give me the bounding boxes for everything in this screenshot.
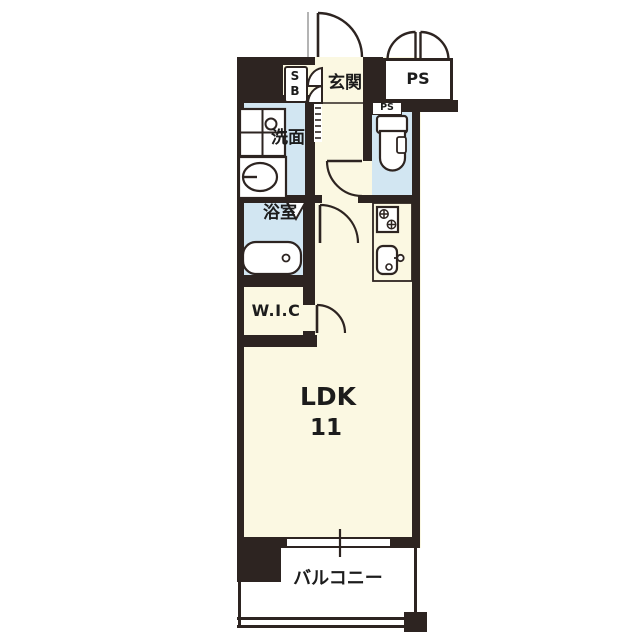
wall-wic-bottom xyxy=(237,335,317,347)
balcony-left-line xyxy=(238,581,241,628)
wall-left xyxy=(237,57,244,546)
wall-right xyxy=(412,102,420,546)
washroom-label: 洗面 xyxy=(260,129,316,148)
wall-bath-wic-divider xyxy=(237,275,315,287)
bathroom-label: 浴室 xyxy=(252,204,308,223)
ldk-label: LDK xyxy=(288,383,368,411)
wall-washroom-bath-divider xyxy=(237,195,315,203)
ps-door-swing-left xyxy=(388,32,416,60)
wall-hall-bottom-right xyxy=(358,195,420,203)
toilet-floor xyxy=(372,112,412,202)
balcony-rail-inner xyxy=(237,625,410,628)
balcony-rail-outer xyxy=(237,617,410,620)
washroom-floor xyxy=(244,103,307,195)
balcony-corner-post xyxy=(404,612,427,632)
wic-label: W.I.C xyxy=(246,302,306,320)
wall-ldk-bottom-right xyxy=(390,537,420,548)
wall-hall-bottom-left xyxy=(305,195,322,203)
wall-hall-left xyxy=(305,95,315,203)
ps-door-swing-right xyxy=(421,32,449,60)
balcony-label: バルコニー xyxy=(258,569,418,589)
shoe-box-label: SB xyxy=(288,69,302,99)
pipe-space-label: PS xyxy=(383,70,453,88)
ldk-size-label: 11 xyxy=(286,416,366,441)
balcony-window xyxy=(287,537,390,548)
floor-plan: 玄関 SB PS PS 洗面 浴室 W.I.C LDK 11 バルコニー xyxy=(0,0,640,640)
entrance-label: 玄関 xyxy=(317,74,373,93)
entrance-door-swing xyxy=(318,13,362,57)
pipe-space-duct-label: PS xyxy=(372,103,402,113)
